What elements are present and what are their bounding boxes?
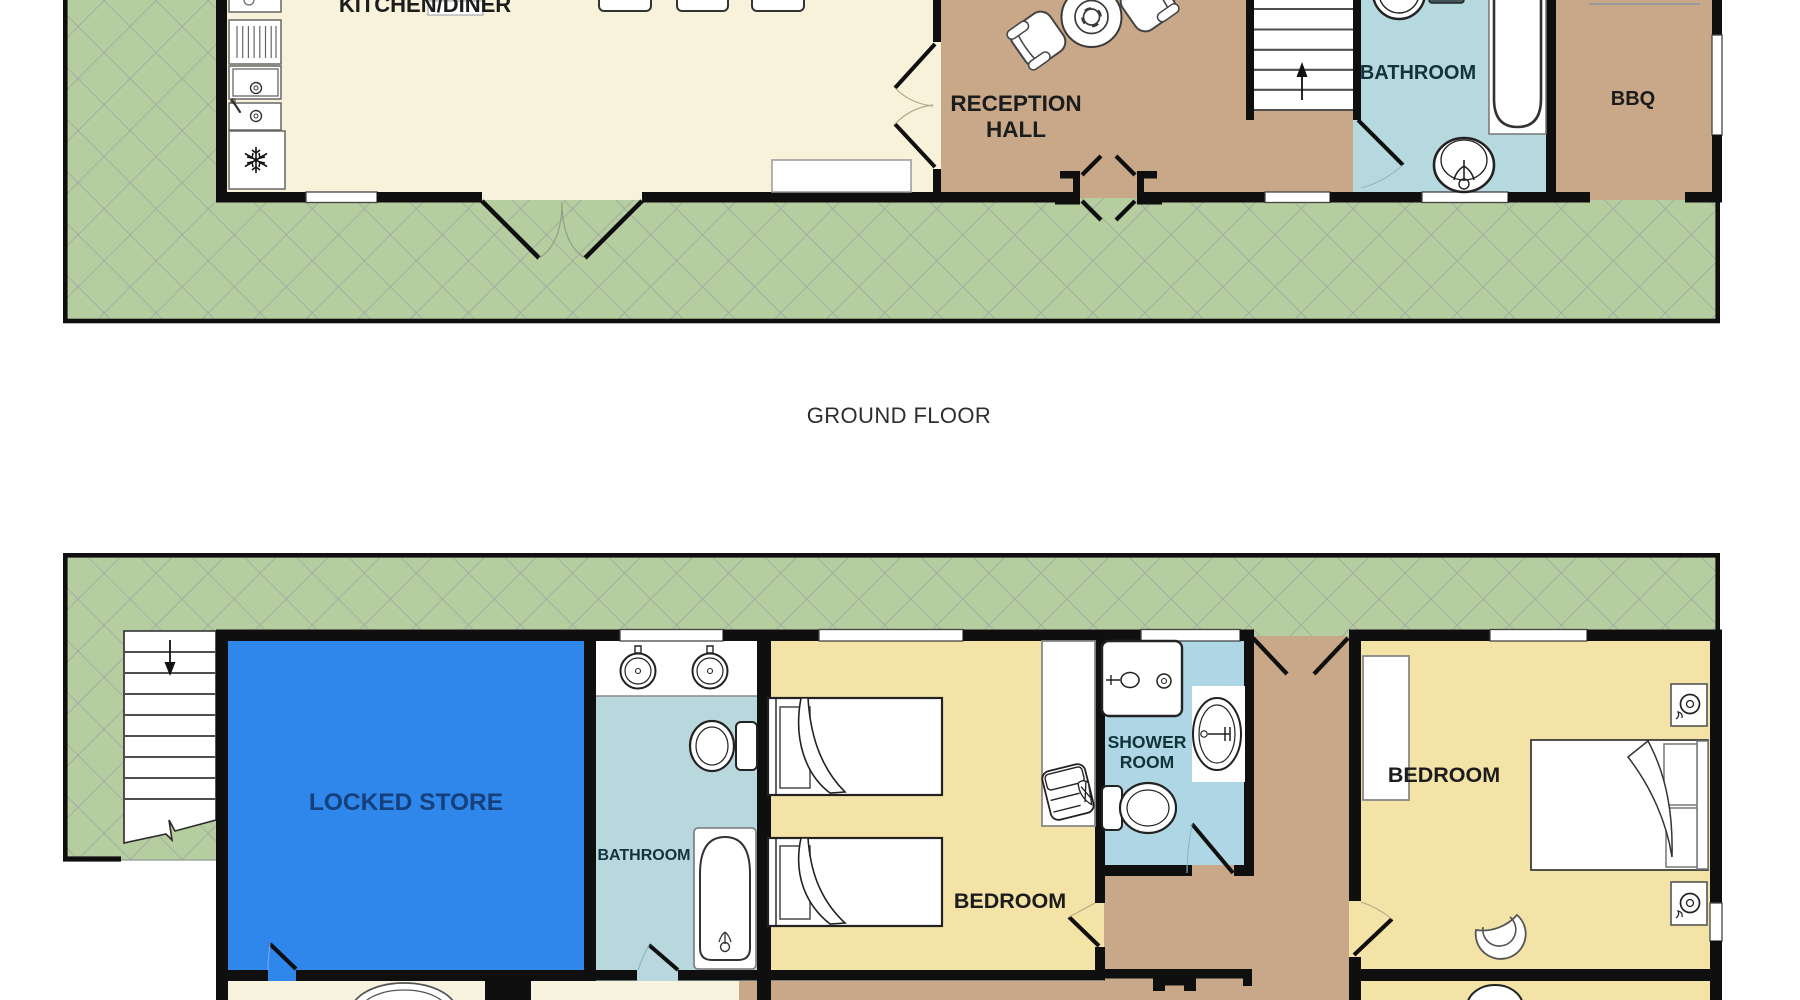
svg-text:BATHROOM: BATHROOM — [1360, 62, 1476, 84]
svg-text:BEDROOM: BEDROOM — [1388, 763, 1500, 787]
svg-text:HALL: HALL — [986, 117, 1046, 142]
svg-text:SHOWER: SHOWER — [1108, 732, 1187, 752]
svg-text:ROOM: ROOM — [1120, 752, 1174, 772]
svg-text:RECEPTION: RECEPTION — [950, 91, 1081, 116]
svg-text:KITCHEN/DINER: KITCHEN/DINER — [339, 0, 511, 17]
svg-text:GROUND FLOOR: GROUND FLOOR — [807, 403, 991, 428]
svg-text:BATHROOM: BATHROOM — [597, 847, 690, 864]
svg-text:BEDROOM: BEDROOM — [954, 889, 1066, 913]
svg-text:BBQ: BBQ — [1611, 88, 1655, 110]
svg-text:LOCKED STORE: LOCKED STORE — [309, 789, 503, 816]
